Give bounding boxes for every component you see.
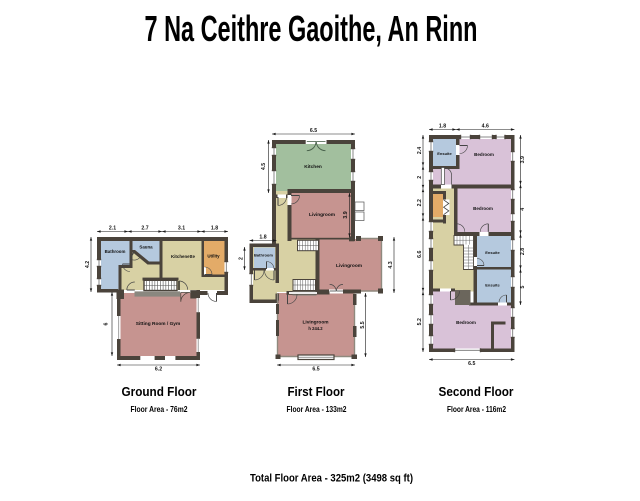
- svg-text:4.3: 4.3: [388, 261, 394, 268]
- svg-text:4: 4: [520, 208, 526, 211]
- svg-text:Bathroom: Bathroom: [254, 253, 273, 258]
- svg-text:1.8: 1.8: [439, 124, 446, 130]
- svg-text:4.6: 4.6: [482, 124, 489, 130]
- svg-text:Bedroom: Bedroom: [473, 206, 493, 211]
- svg-text:1.8: 1.8: [211, 226, 218, 232]
- svg-text:Livingroom: Livingroom: [302, 320, 328, 326]
- svg-text:3.1: 3.1: [178, 226, 185, 232]
- svg-text:First Floor: First Floor: [288, 384, 345, 399]
- svg-text:3.9: 3.9: [343, 211, 349, 218]
- svg-text:Utility: Utility: [207, 254, 220, 259]
- svg-text:Sitting Room / Gym: Sitting Room / Gym: [136, 321, 181, 327]
- svg-text:7 Na Ceithre Gaoithe, An Rinn: 7 Na Ceithre Gaoithe, An Rinn: [145, 8, 478, 49]
- svg-text:2.7: 2.7: [141, 226, 148, 232]
- svg-text:6: 6: [104, 322, 110, 325]
- svg-text:2.1: 2.1: [109, 226, 116, 232]
- svg-text:5: 5: [520, 285, 526, 288]
- svg-text:6.5: 6.5: [312, 367, 319, 373]
- svg-text:Second Floor: Second Floor: [439, 384, 514, 399]
- svg-text:Ensuite: Ensuite: [485, 250, 500, 255]
- svg-text:Ensuite: Ensuite: [437, 151, 452, 156]
- svg-text:6.2: 6.2: [155, 367, 162, 373]
- svg-text:h 244.2: h 244.2: [308, 326, 323, 331]
- svg-text:Livingroom: Livingroom: [336, 263, 362, 269]
- svg-text:Floor Area - 133m2: Floor Area - 133m2: [287, 404, 347, 414]
- svg-text:Ground Floor: Ground Floor: [122, 384, 197, 399]
- svg-text:Bedroom: Bedroom: [474, 152, 494, 157]
- svg-text:1.8: 1.8: [259, 235, 266, 241]
- svg-text:6.5: 6.5: [310, 128, 317, 134]
- svg-text:Total Floor Area - 325m2 (3498: Total Floor Area - 325m2 (3498 sq ft): [250, 473, 413, 485]
- svg-text:4.5: 4.5: [261, 163, 267, 170]
- svg-text:Kitchenette: Kitchenette: [171, 254, 195, 259]
- svg-text:Sauna: Sauna: [139, 245, 153, 250]
- svg-text:Bedroom: Bedroom: [456, 320, 476, 325]
- svg-text:Bathroom: Bathroom: [105, 249, 126, 254]
- svg-text:3.9: 3.9: [520, 156, 526, 163]
- svg-text:2.8: 2.8: [520, 248, 526, 255]
- svg-text:Ensuite: Ensuite: [485, 283, 500, 288]
- svg-text:2: 2: [239, 257, 245, 260]
- svg-text:5.2: 5.2: [417, 318, 423, 325]
- svg-text:2: 2: [417, 176, 423, 179]
- svg-text:Kitchen: Kitchen: [304, 164, 322, 170]
- svg-text:Floor Area - 76m2: Floor Area - 76m2: [131, 404, 188, 414]
- svg-text:5.5: 5.5: [360, 321, 366, 328]
- svg-text:Floor Area - 116m2: Floor Area - 116m2: [447, 404, 506, 414]
- svg-text:2.4: 2.4: [417, 147, 423, 154]
- svg-text:4.2: 4.2: [85, 261, 91, 268]
- svg-text:6.6: 6.6: [417, 251, 423, 258]
- svg-text:2.2: 2.2: [417, 199, 423, 206]
- svg-text:6.5: 6.5: [468, 361, 475, 367]
- svg-text:Livingroom: Livingroom: [309, 212, 335, 218]
